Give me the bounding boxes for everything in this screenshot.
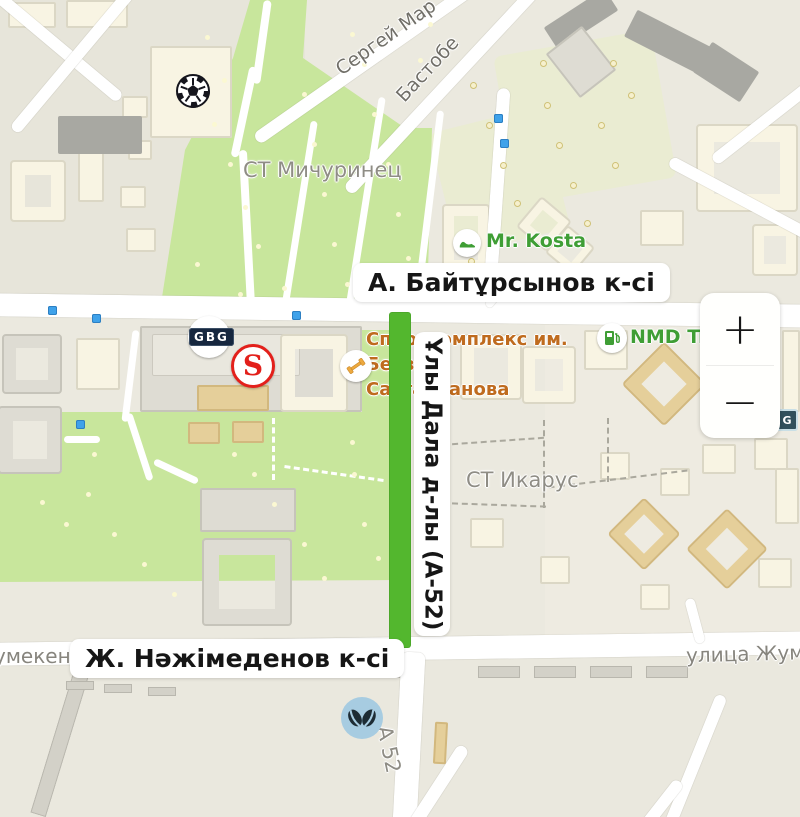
building-courtyard (754, 226, 796, 274)
tree (195, 262, 200, 267)
tree (302, 542, 307, 547)
transit-stop-marker (500, 139, 509, 148)
tree (396, 212, 401, 217)
transit-stop-marker (76, 420, 85, 429)
soccer-ball-icon (175, 73, 211, 109)
zoom-out-button[interactable]: − (700, 366, 780, 438)
building (78, 152, 104, 202)
street-label-uly-dala: Ұлы Дала д-лы (А-52) (414, 332, 450, 636)
sneaker-icon (458, 234, 476, 252)
tree (172, 592, 177, 597)
tree (612, 162, 619, 169)
building (76, 338, 120, 390)
tree (282, 286, 287, 291)
building (600, 452, 630, 480)
tree (406, 256, 411, 261)
street-label-baitursynov: А. Байтұрсынов к-сі (353, 263, 670, 302)
footpath (64, 436, 100, 443)
sport-court (232, 421, 264, 443)
boundary-dashed (452, 437, 544, 445)
building-courtyard-gray (4, 336, 60, 392)
building (702, 444, 736, 474)
boundary-dashed (607, 418, 609, 482)
transit-stop-marker (494, 114, 503, 123)
zoom-control: + − (700, 293, 780, 438)
mr-kosta-label[interactable]: Mr. Kosta (486, 230, 586, 252)
tree (92, 452, 97, 457)
tree (428, 22, 433, 27)
tree (350, 440, 355, 445)
building-courtyard-gray (204, 540, 290, 624)
tree (256, 244, 261, 249)
tree (86, 492, 91, 497)
dumbbell-icon (345, 355, 367, 377)
garage-row (646, 666, 688, 678)
map-canvas[interactable]: Спорткомплекс им. Бекзата Саттарханова M… (0, 0, 800, 817)
building (782, 330, 800, 412)
s-logo-poi[interactable]: S (231, 344, 275, 388)
tree (332, 242, 337, 247)
tree (628, 92, 635, 99)
boundary-dashed (452, 502, 546, 507)
area-label-michurinets: СТ Мичуринец (243, 158, 402, 182)
street-label-zhumeken: улица Жумекена (686, 639, 800, 668)
building (120, 186, 146, 208)
tree (272, 502, 277, 507)
tree (302, 92, 307, 97)
building (775, 468, 799, 524)
tree (228, 162, 233, 167)
transit-stop-marker (92, 314, 101, 323)
street-label-uly-dala-text: Ұлы Дала д-лы (А-52) (419, 338, 445, 631)
tree (544, 102, 551, 109)
gbg-logo[interactable]: GBG (189, 328, 234, 346)
street-label-nazhimedenov: Ж. Нәжімеденов к-сі (70, 639, 404, 678)
tree (470, 82, 477, 89)
building (122, 96, 148, 118)
tree (312, 142, 317, 147)
building (758, 558, 792, 588)
tree (372, 112, 377, 117)
boundary-dashed (543, 420, 545, 508)
garage-row (478, 666, 520, 678)
building-courtyard (282, 336, 346, 410)
coffee-beans-icon (340, 696, 384, 740)
nmd-poi[interactable] (597, 323, 627, 353)
building (754, 438, 788, 470)
building (640, 584, 670, 610)
tree (64, 522, 69, 527)
building (640, 210, 684, 246)
garage-row (534, 666, 576, 678)
tree (556, 142, 563, 149)
building-courtyard-gray (0, 408, 60, 472)
tree (570, 182, 577, 189)
building (126, 228, 156, 252)
tree (232, 452, 237, 457)
tree (376, 556, 381, 561)
sport-complex-poi[interactable] (340, 350, 372, 382)
sport-court (197, 385, 269, 411)
garage-row (148, 687, 176, 696)
tree (540, 60, 547, 67)
tree (500, 162, 507, 169)
tree (322, 192, 327, 197)
sport-court (433, 722, 448, 765)
garage-row (590, 666, 632, 678)
tree (350, 32, 355, 37)
building-courtyard (12, 162, 64, 220)
tree (345, 282, 350, 287)
transit-stop-marker (292, 311, 301, 320)
tree (205, 35, 210, 40)
garage-row (66, 681, 94, 690)
area-label-ikarus: СТ Икарус (466, 468, 579, 492)
garage-row (104, 684, 132, 693)
tree (142, 562, 147, 567)
footpath-dashed (272, 418, 275, 480)
footpath (121, 330, 139, 422)
sport-court (188, 422, 220, 444)
tree (352, 472, 357, 477)
s-logo-letter: S (243, 352, 263, 380)
transit-stop-marker (48, 306, 57, 315)
tree (222, 78, 227, 83)
tree (598, 122, 605, 129)
tree (112, 532, 117, 537)
building-dark (58, 116, 142, 154)
tree (243, 205, 248, 210)
building (470, 518, 504, 548)
tree (322, 576, 327, 581)
tree (584, 220, 591, 227)
tree (212, 122, 217, 127)
tree (40, 500, 45, 505)
tree (252, 472, 257, 477)
tree (486, 122, 493, 129)
mr-kosta-poi[interactable] (453, 229, 481, 257)
fuel-pump-icon (602, 328, 622, 348)
tree (610, 60, 617, 67)
highlighted-road-uly-dala[interactable] (389, 312, 411, 648)
building-gray (200, 488, 296, 532)
tree (238, 292, 243, 297)
tree (362, 522, 367, 527)
tree (514, 200, 521, 207)
building (540, 556, 570, 584)
coffee-poi[interactable] (340, 696, 384, 740)
soccer-poi[interactable] (175, 73, 211, 109)
zoom-in-button[interactable]: + (700, 293, 780, 365)
